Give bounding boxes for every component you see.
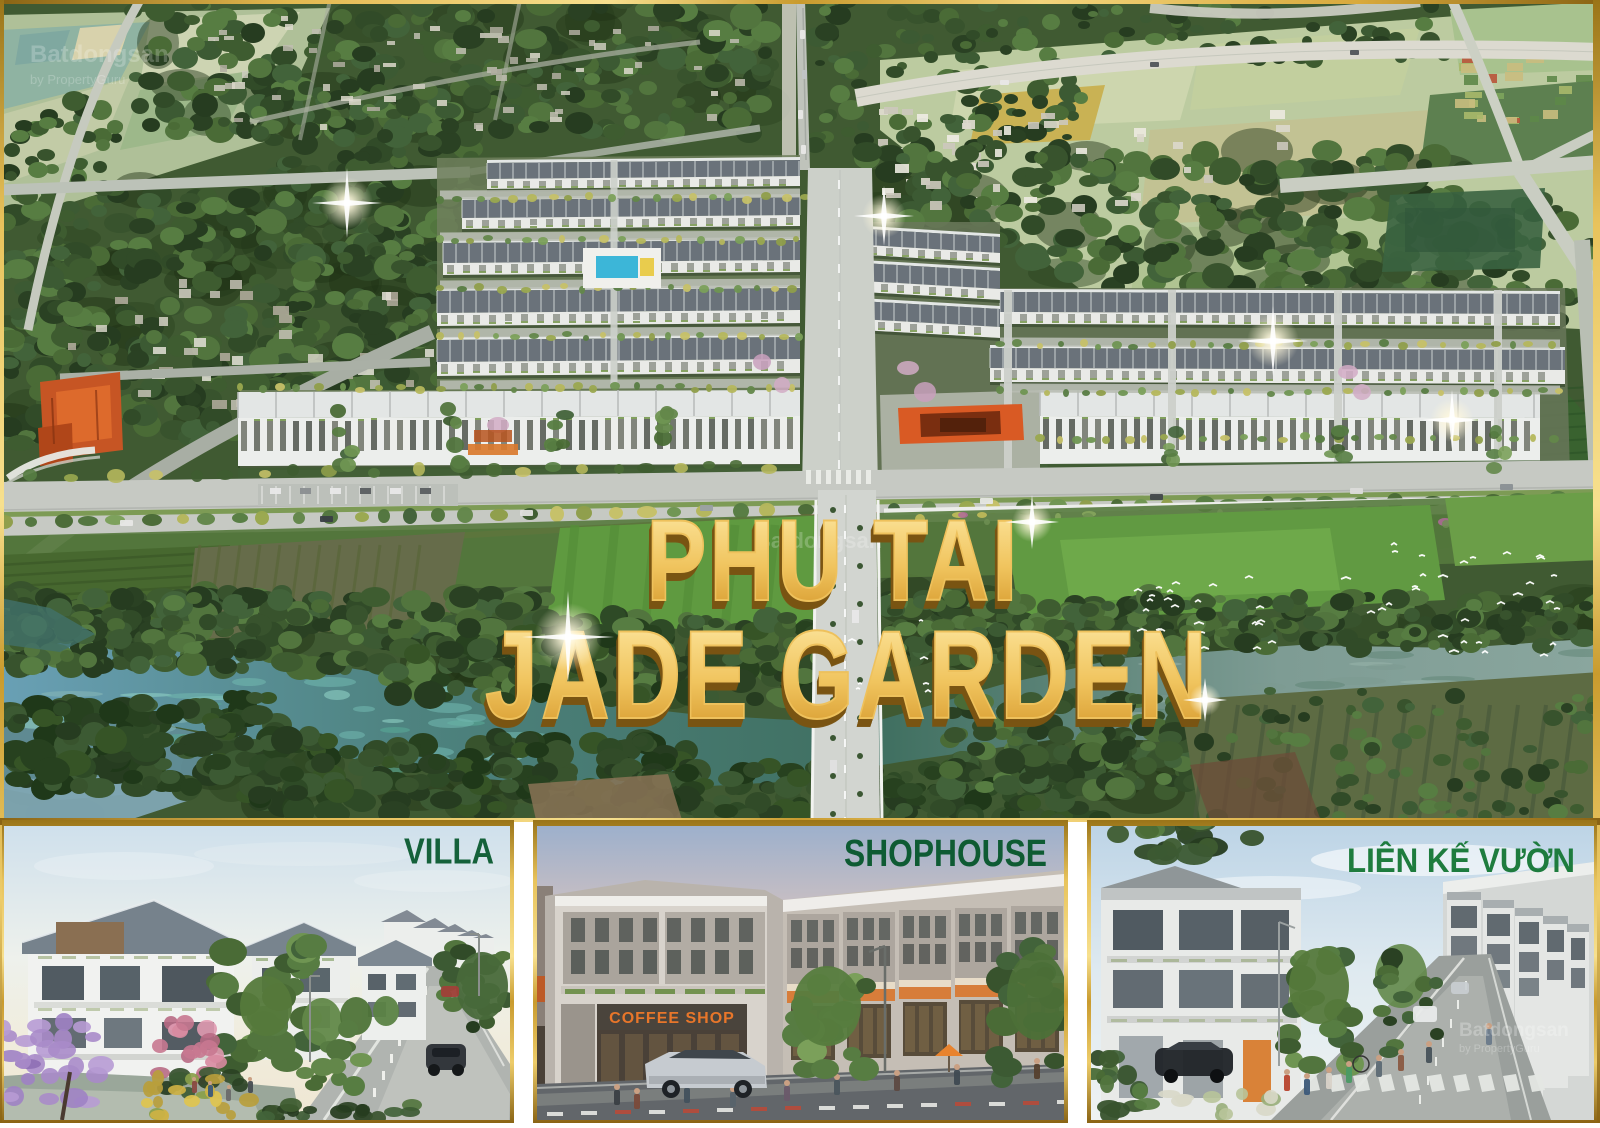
svg-text:SHOPHOUSE: SHOPHOUSE [844, 833, 1047, 875]
svg-text:COFFEE SHOP: COFFEE SHOP [609, 1010, 735, 1027]
svg-text:VILLA: VILLA [404, 831, 494, 872]
svg-text:by PropertyGuru: by PropertyGuru [30, 72, 125, 87]
svg-text:Batdongsan: Batdongsan [30, 41, 169, 68]
